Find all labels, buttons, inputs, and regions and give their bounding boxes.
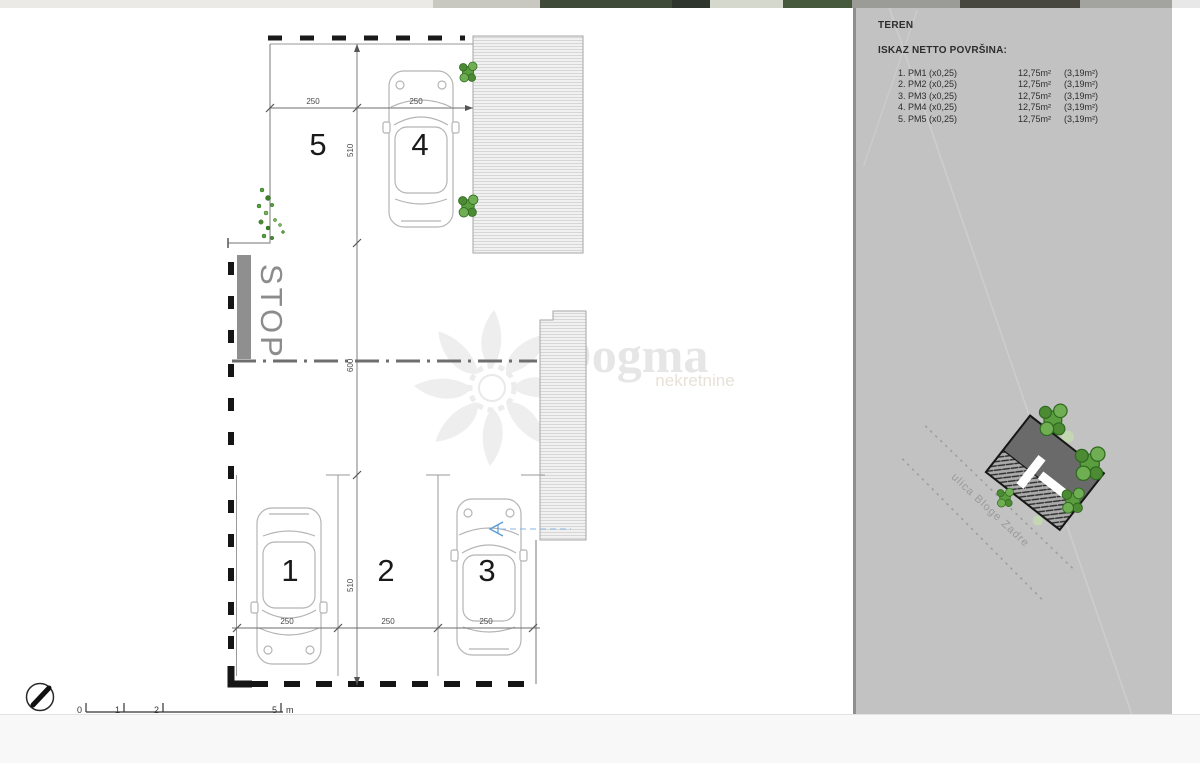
vegetation-left xyxy=(257,188,285,240)
row-value: 12,75m² xyxy=(1018,102,1064,113)
row-value: 12,75m² xyxy=(1018,79,1064,90)
building-north xyxy=(473,36,583,253)
row-label: 2. PM2 (x0,25) xyxy=(898,79,1018,90)
dim-bot-w3: 250 xyxy=(479,617,493,626)
photo-strip-segment xyxy=(1080,0,1172,8)
table-row: 5. PM5 (x0,25) 12,75m² (3,19m²) xyxy=(898,114,1148,125)
photo-strip-segment xyxy=(540,0,672,8)
spot-divider xyxy=(326,475,350,676)
row-coef: (3,19m²) xyxy=(1064,102,1148,113)
photo-strip-segment xyxy=(1172,0,1200,8)
dim-bot-w2: 250 xyxy=(381,617,395,626)
scale-2: 2 xyxy=(154,705,159,714)
row-coef: (3,19m²) xyxy=(1064,68,1148,79)
photo-strip-segment xyxy=(672,0,710,8)
stop-label: STOP xyxy=(254,264,289,360)
info-panel: ulica Bloge Zadre TEREN ISKAZ NETTO POVR… xyxy=(853,6,1172,714)
dimension-vertical: 510 600 510 xyxy=(346,44,361,685)
north-arrow-icon xyxy=(27,684,54,711)
dimension-top: 250 250 xyxy=(266,97,473,112)
scale-0: 0 xyxy=(77,705,82,714)
panel-title: TEREN xyxy=(878,20,913,31)
boundary-left-thin xyxy=(228,44,270,243)
scale-5: 5 xyxy=(272,705,277,714)
row-label: 3. PM3 (x0,25) xyxy=(898,91,1018,102)
dim-top-w2: 250 xyxy=(409,97,423,106)
table-row: 4. PM4 (x0,25) 12,75m² (3,19m²) xyxy=(898,102,1148,113)
row-coef: (3,19m²) xyxy=(1064,114,1148,125)
boundary-corner xyxy=(231,666,252,684)
dim-aisle: 600 xyxy=(346,358,355,372)
spot-label-3: 3 xyxy=(478,553,495,588)
dim-top-w1: 250 xyxy=(306,97,320,106)
dim-height-top: 510 xyxy=(346,143,355,157)
scale-unit: m xyxy=(286,705,294,714)
map-bush-icon xyxy=(997,488,1014,507)
page-bottom-strip xyxy=(0,714,1200,763)
table-row: 1. PM1 (x0,25) 12,75m² (3,19m²) xyxy=(898,68,1148,79)
table-row: 2. PM2 (x0,25) 12,75m² (3,19m²) xyxy=(898,79,1148,90)
building-middle xyxy=(540,311,586,540)
spot-label-5: 5 xyxy=(309,127,326,162)
area-table: 1. PM1 (x0,25) 12,75m² (3,19m²) 2. PM2 (… xyxy=(898,68,1148,125)
watermark-subtitle: nekretnine xyxy=(655,371,734,390)
spot-label-4: 4 xyxy=(411,127,428,162)
row-coef: (3,19m²) xyxy=(1064,91,1148,102)
map-bush-icon xyxy=(1039,404,1067,435)
row-value: 12,75m² xyxy=(1018,91,1064,102)
map-bush-icon xyxy=(1075,447,1105,481)
spot-divider xyxy=(426,475,450,676)
photo-strip-segment xyxy=(960,0,1080,8)
dim-height-bottom: 510 xyxy=(346,578,355,592)
row-label: 5. PM5 (x0,25) xyxy=(898,114,1018,125)
panel-subtitle: ISKAZ NETTO POVRŠINA: xyxy=(878,45,1007,56)
photo-strip-segment xyxy=(710,0,783,8)
scale-1: 1 xyxy=(115,705,120,714)
dimension-bottom: 250 250 250 xyxy=(232,617,540,632)
table-row: 3. PM3 (x0,25) 12,75m² (3,19m²) xyxy=(898,91,1148,102)
row-value: 12,75m² xyxy=(1018,114,1064,125)
row-coef: (3,19m²) xyxy=(1064,79,1148,90)
photo-strip-segment xyxy=(783,0,852,8)
site-plan-drawing: Dogma nekretnine STOP 5 4 1 2 xyxy=(0,0,860,714)
row-label: 4. PM4 (x0,25) xyxy=(898,102,1018,113)
photo-strip-segment xyxy=(0,0,433,8)
spot-label-2: 2 xyxy=(377,553,394,588)
spot-label-1: 1 xyxy=(281,553,298,588)
row-value: 12,75m² xyxy=(1018,68,1064,79)
row-label: 1. PM1 (x0,25) xyxy=(898,68,1018,79)
photo-strip-segment xyxy=(852,0,960,8)
photo-strip-segment xyxy=(433,0,540,8)
dim-bot-w1: 250 xyxy=(280,617,294,626)
stop-bar xyxy=(237,255,251,359)
scale-bar: 0 1 2 5 m xyxy=(77,703,294,714)
photo-strip xyxy=(0,0,1200,8)
